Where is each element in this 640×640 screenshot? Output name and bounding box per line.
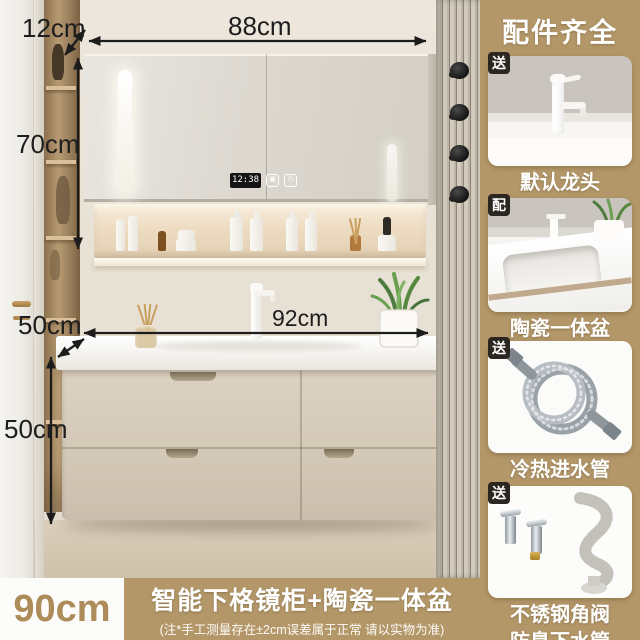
cosmetic-jar [178, 230, 195, 239]
toiletry-bottle [128, 216, 138, 251]
reed-diffuser [131, 308, 163, 348]
door-handle [12, 301, 31, 307]
measurement-note: (注*手工测量存在±2cm误差属于正常 请以实物为准) [160, 619, 445, 638]
valve-drain-photo [488, 486, 632, 598]
defog-button-icon: ▣ [266, 174, 279, 187]
wall-hook [450, 62, 469, 79]
pump-bottle [305, 218, 317, 251]
accessory-card-hose: 送 冷热进水管 [488, 341, 632, 484]
bathroom-photo: 12:38 ▣ ◷ [0, 0, 480, 578]
accessory-label: 冷热进水管 [488, 457, 632, 484]
photo-basin-spout [546, 214, 566, 219]
slat-wall-panel [436, 0, 480, 578]
photo-basin-faucet [550, 216, 558, 246]
gift-badge: 送 [488, 337, 510, 359]
niche-shelf-lip [94, 258, 426, 266]
diffuser-vase [135, 325, 157, 348]
cosmetic-jar [378, 235, 396, 251]
accessory-label: 默认龙头 [488, 170, 632, 197]
drawer-seam [62, 447, 444, 449]
mirror-led-strip [118, 70, 132, 194]
shelf-decor [52, 44, 64, 80]
mirror-led-reflection [387, 144, 397, 202]
dimension-counter-depth: 50cm [18, 310, 82, 341]
toiletry-bottle [116, 219, 125, 251]
door [0, 0, 34, 578]
wall-hook [450, 104, 469, 121]
dimension-mirror-depth: 12cm [22, 13, 86, 44]
door-seam [300, 370, 302, 520]
door-frame [35, 0, 44, 578]
cosmetic-jar [176, 239, 196, 251]
faucet-body [251, 289, 262, 339]
dimension-counter-width: 92cm [272, 305, 328, 332]
drawer-handle-notch [166, 449, 198, 458]
pump-bottle [230, 217, 243, 251]
dimension-cabinet-height: 50cm [4, 414, 68, 445]
sidebar-title: 配件齐全 [480, 11, 640, 50]
accessories-sidebar: 配件齐全 送 默认龙头 配 [480, 0, 640, 640]
included-badge: 配 [488, 194, 510, 216]
bottom-caption-bar: 智能下格镜柜+陶瓷一体盆 (注*手工测量存在±2cm误差属于正常 请以实物为准) [124, 578, 480, 640]
hose-photo [488, 341, 632, 453]
accessory-label: 不锈钢角阀 [488, 602, 632, 629]
wall-hook [450, 186, 469, 203]
accessory-card-faucet: 送 默认龙头 [488, 56, 632, 197]
mirror-clock-panel: 12:38 ▣ ◷ [230, 173, 297, 188]
size-value: 90cm [13, 588, 110, 631]
size-callout: 90cm [0, 578, 124, 640]
light-button-icon: ◷ [284, 174, 297, 187]
accessory-card-basin: 配 陶瓷一体盆 [488, 198, 632, 343]
shelf-decor [56, 176, 70, 224]
photo-faucet-tip [580, 108, 586, 116]
shelf-board [46, 160, 76, 164]
product-title: 智能下格镜柜+陶瓷一体盆 [151, 581, 453, 617]
shelf-board [46, 86, 76, 90]
faucet-photo [488, 56, 632, 166]
pump-bottle [250, 218, 263, 251]
open-shelf-niche [94, 204, 426, 258]
integrated-basin [156, 341, 361, 351]
photo-plant-pot [594, 220, 624, 242]
pump-bottle [286, 218, 298, 251]
amber-dropper-bottle [158, 231, 166, 251]
accessory-card-valve-drain: 送 不锈钢角阀 防臭下水管 [488, 486, 632, 640]
photo-faucet-lever [564, 74, 582, 82]
vanity-cabinet [62, 370, 444, 520]
clock-display: 12:38 [230, 173, 261, 188]
basin-photo [488, 198, 632, 312]
accessory-label-line2: 防臭下水管 [488, 629, 632, 640]
smart-mirror-cabinet: 12:38 ▣ ◷ [84, 54, 428, 202]
gift-badge: 送 [488, 52, 510, 74]
door-handle-notch [324, 449, 354, 458]
gift-badge: 送 [488, 482, 510, 504]
shelf-decor [50, 250, 60, 280]
shelf-board [46, 236, 76, 240]
brass-fitting [530, 552, 540, 560]
angle-valve [531, 526, 542, 554]
dark-dropper-bottle [383, 217, 391, 235]
wall-hook [450, 145, 469, 162]
product-infographic: 12:38 ▣ ◷ [0, 0, 640, 640]
drawer-handle-notch [170, 372, 216, 381]
angle-valve [505, 516, 516, 544]
drain-pipe-drawing [550, 492, 630, 596]
potted-plant [366, 270, 432, 348]
dimension-mirror-height: 70cm [16, 129, 80, 160]
dimension-mirror-width: 88cm [228, 11, 292, 42]
braided-hose-drawing [488, 341, 632, 453]
faucet-tip [270, 295, 275, 302]
